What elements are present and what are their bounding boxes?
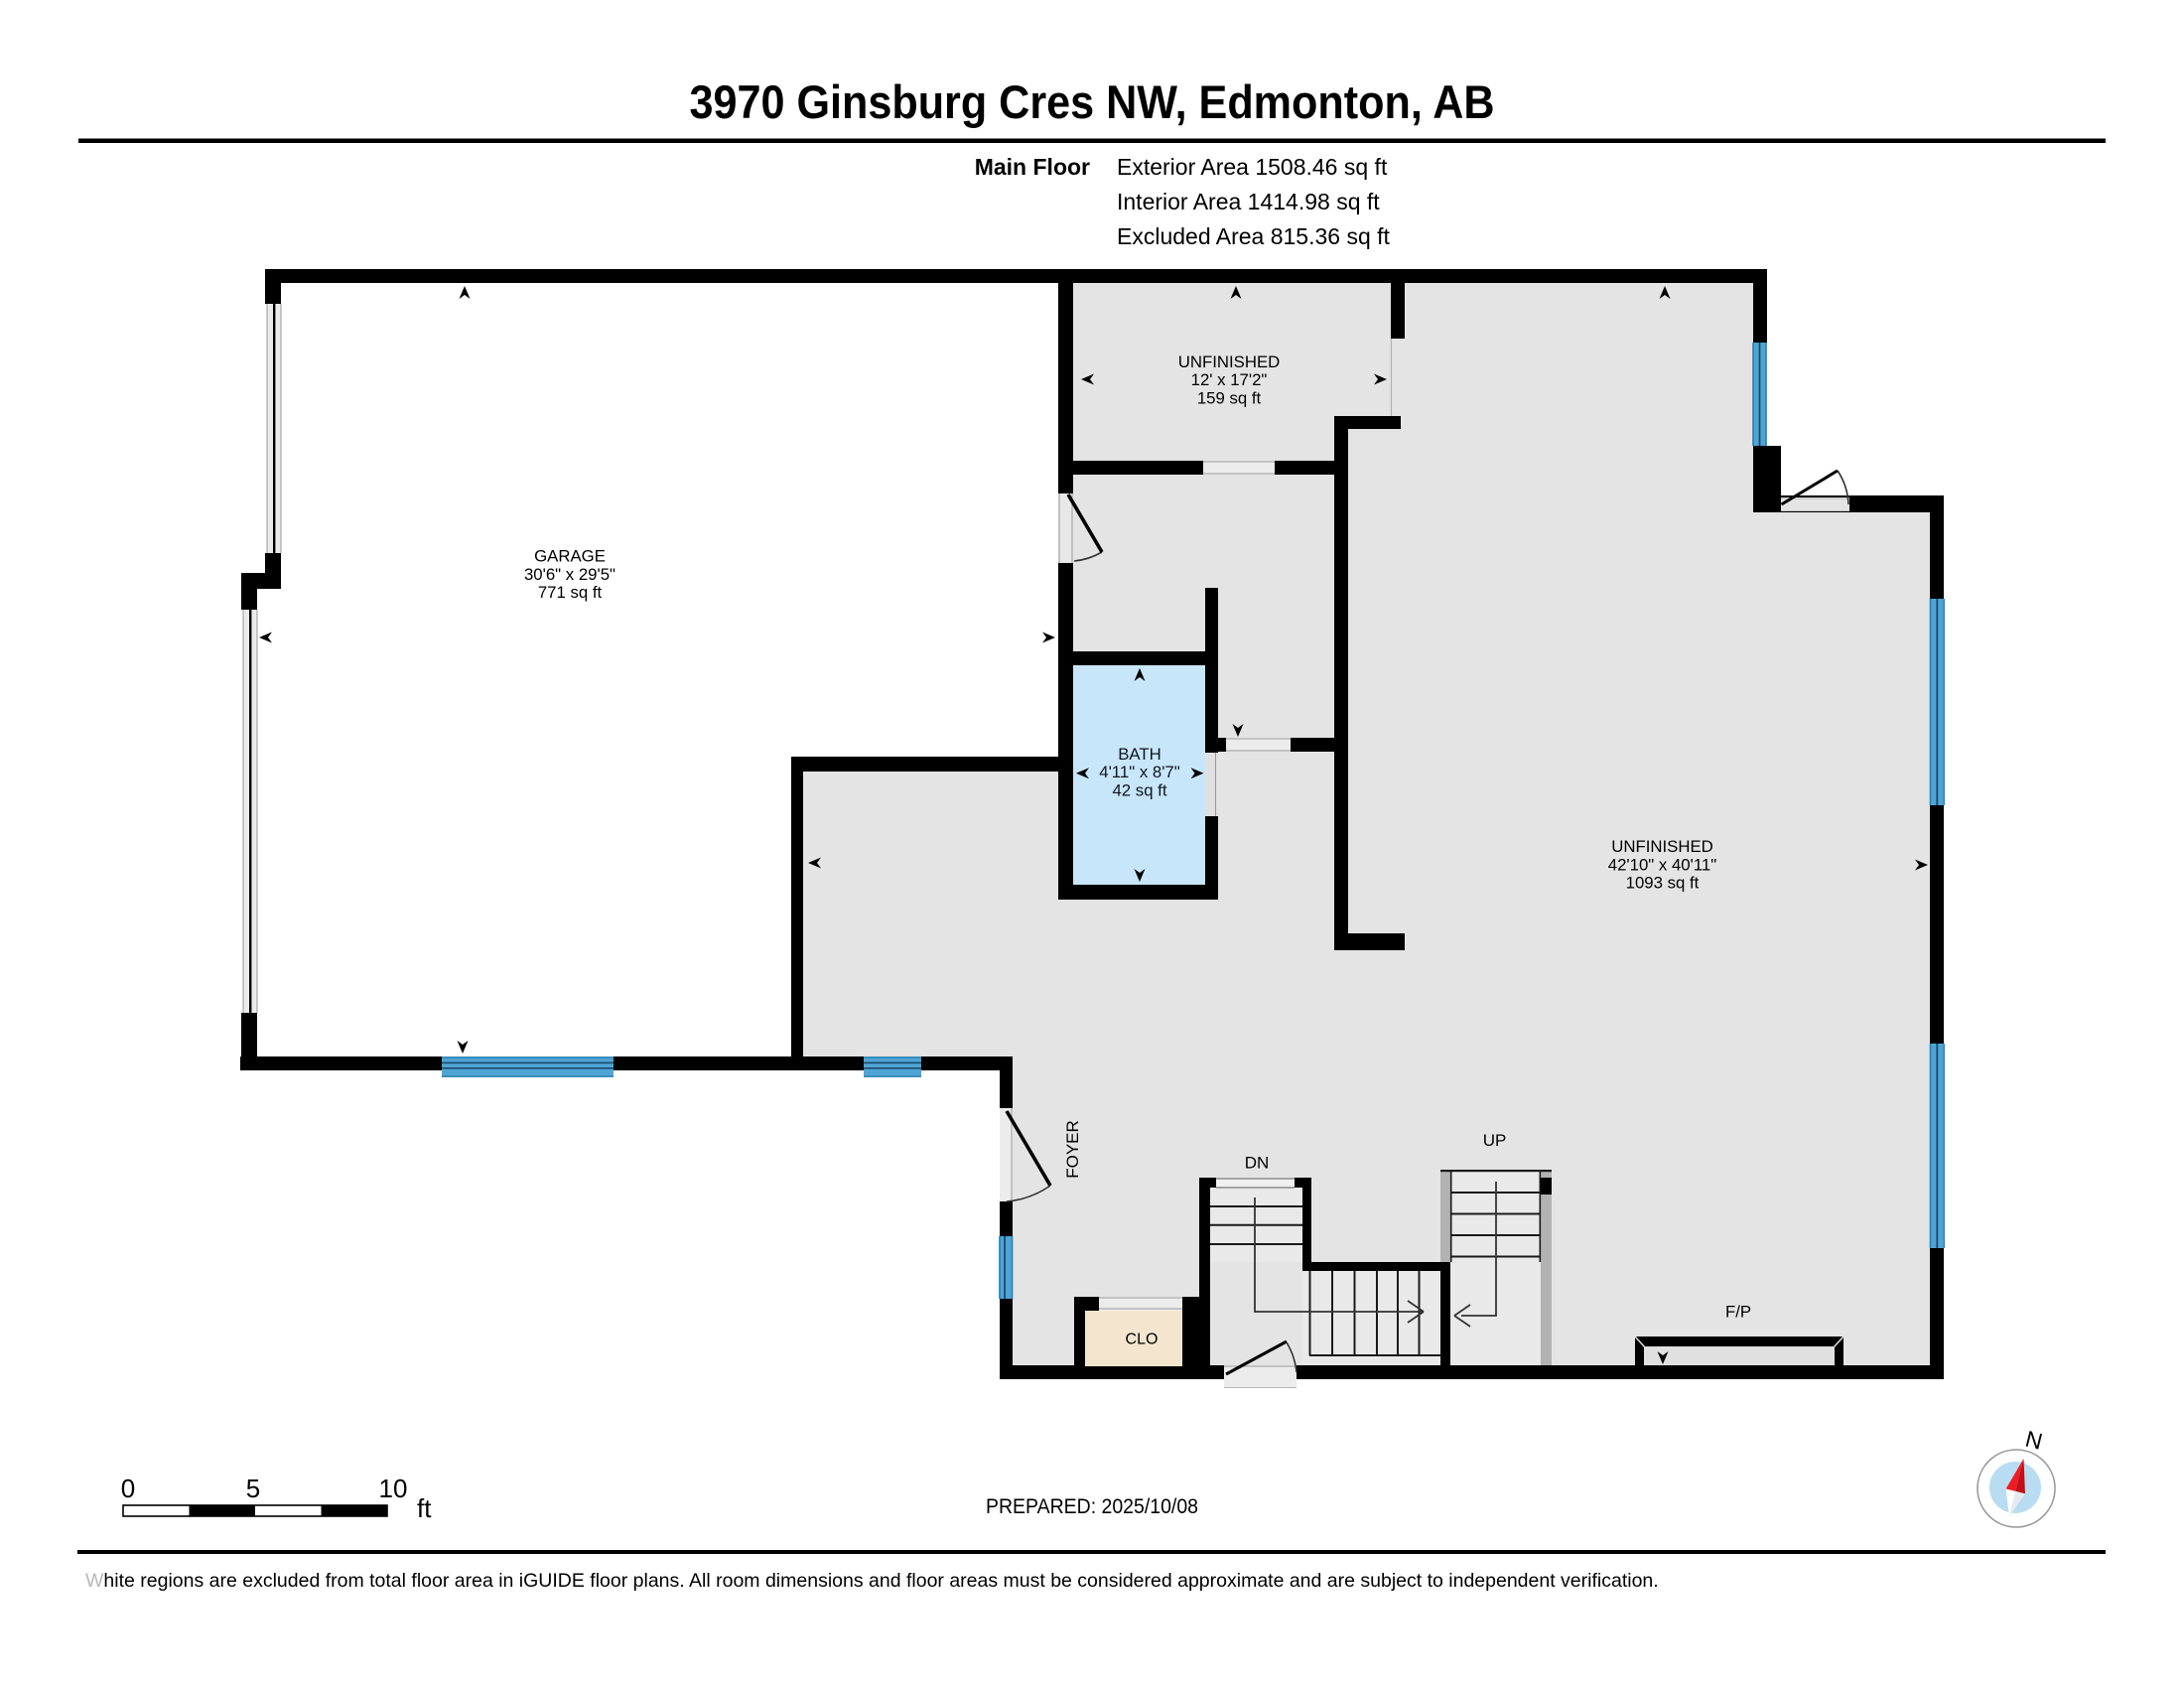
svg-text:159 sq ft: 159 sq ft [1197, 388, 1262, 407]
svg-text:White regions are excluded fro: White regions are excluded from total fl… [85, 1570, 1659, 1592]
svg-text:F/P: F/P [1725, 1303, 1751, 1322]
svg-text:FOYER: FOYER [1063, 1120, 1082, 1179]
svg-text:UP: UP [1483, 1131, 1507, 1150]
svg-text:ft: ft [417, 1493, 432, 1523]
svg-text:BATH: BATH [1118, 745, 1161, 764]
svg-text:1093 sq ft: 1093 sq ft [1626, 874, 1700, 893]
svg-text:Exterior Area 1508.46 sq ft: Exterior Area 1508.46 sq ft [1117, 154, 1388, 180]
svg-text:10: 10 [379, 1474, 408, 1503]
svg-text:Main Floor: Main Floor [975, 154, 1090, 180]
svg-text:GARAGE: GARAGE [534, 547, 606, 566]
svg-text:N: N [2023, 1426, 2045, 1455]
svg-text:UNFINISHED: UNFINISHED [1611, 837, 1713, 856]
svg-text:DN: DN [1245, 1154, 1270, 1173]
svg-text:Excluded Area 815.36 sq ft: Excluded Area 815.36 sq ft [1117, 223, 1391, 249]
svg-text:UNFINISHED: UNFINISHED [1178, 352, 1281, 371]
svg-text:3970 Ginsburg Cres NW, Edmonto: 3970 Ginsburg Cres NW, Edmonton, AB [690, 75, 1495, 128]
svg-text:12' x 17'2": 12' x 17'2" [1191, 370, 1268, 389]
svg-text:5: 5 [246, 1474, 260, 1503]
svg-text:42 sq ft: 42 sq ft [1112, 780, 1166, 799]
svg-text:CLO: CLO [1126, 1332, 1159, 1348]
svg-text:771 sq ft: 771 sq ft [538, 583, 603, 602]
svg-text:30'6" x 29'5": 30'6" x 29'5" [524, 565, 615, 584]
svg-text:Interior Area 1414.98 sq ft: Interior Area 1414.98 sq ft [1117, 189, 1380, 214]
svg-text:42'10" x 40'11": 42'10" x 40'11" [1608, 855, 1716, 874]
svg-text:4'11" x 8'7": 4'11" x 8'7" [1099, 763, 1179, 781]
svg-text:PREPARED: 2025/10/08: PREPARED: 2025/10/08 [986, 1494, 1198, 1518]
svg-text:0: 0 [121, 1474, 135, 1503]
